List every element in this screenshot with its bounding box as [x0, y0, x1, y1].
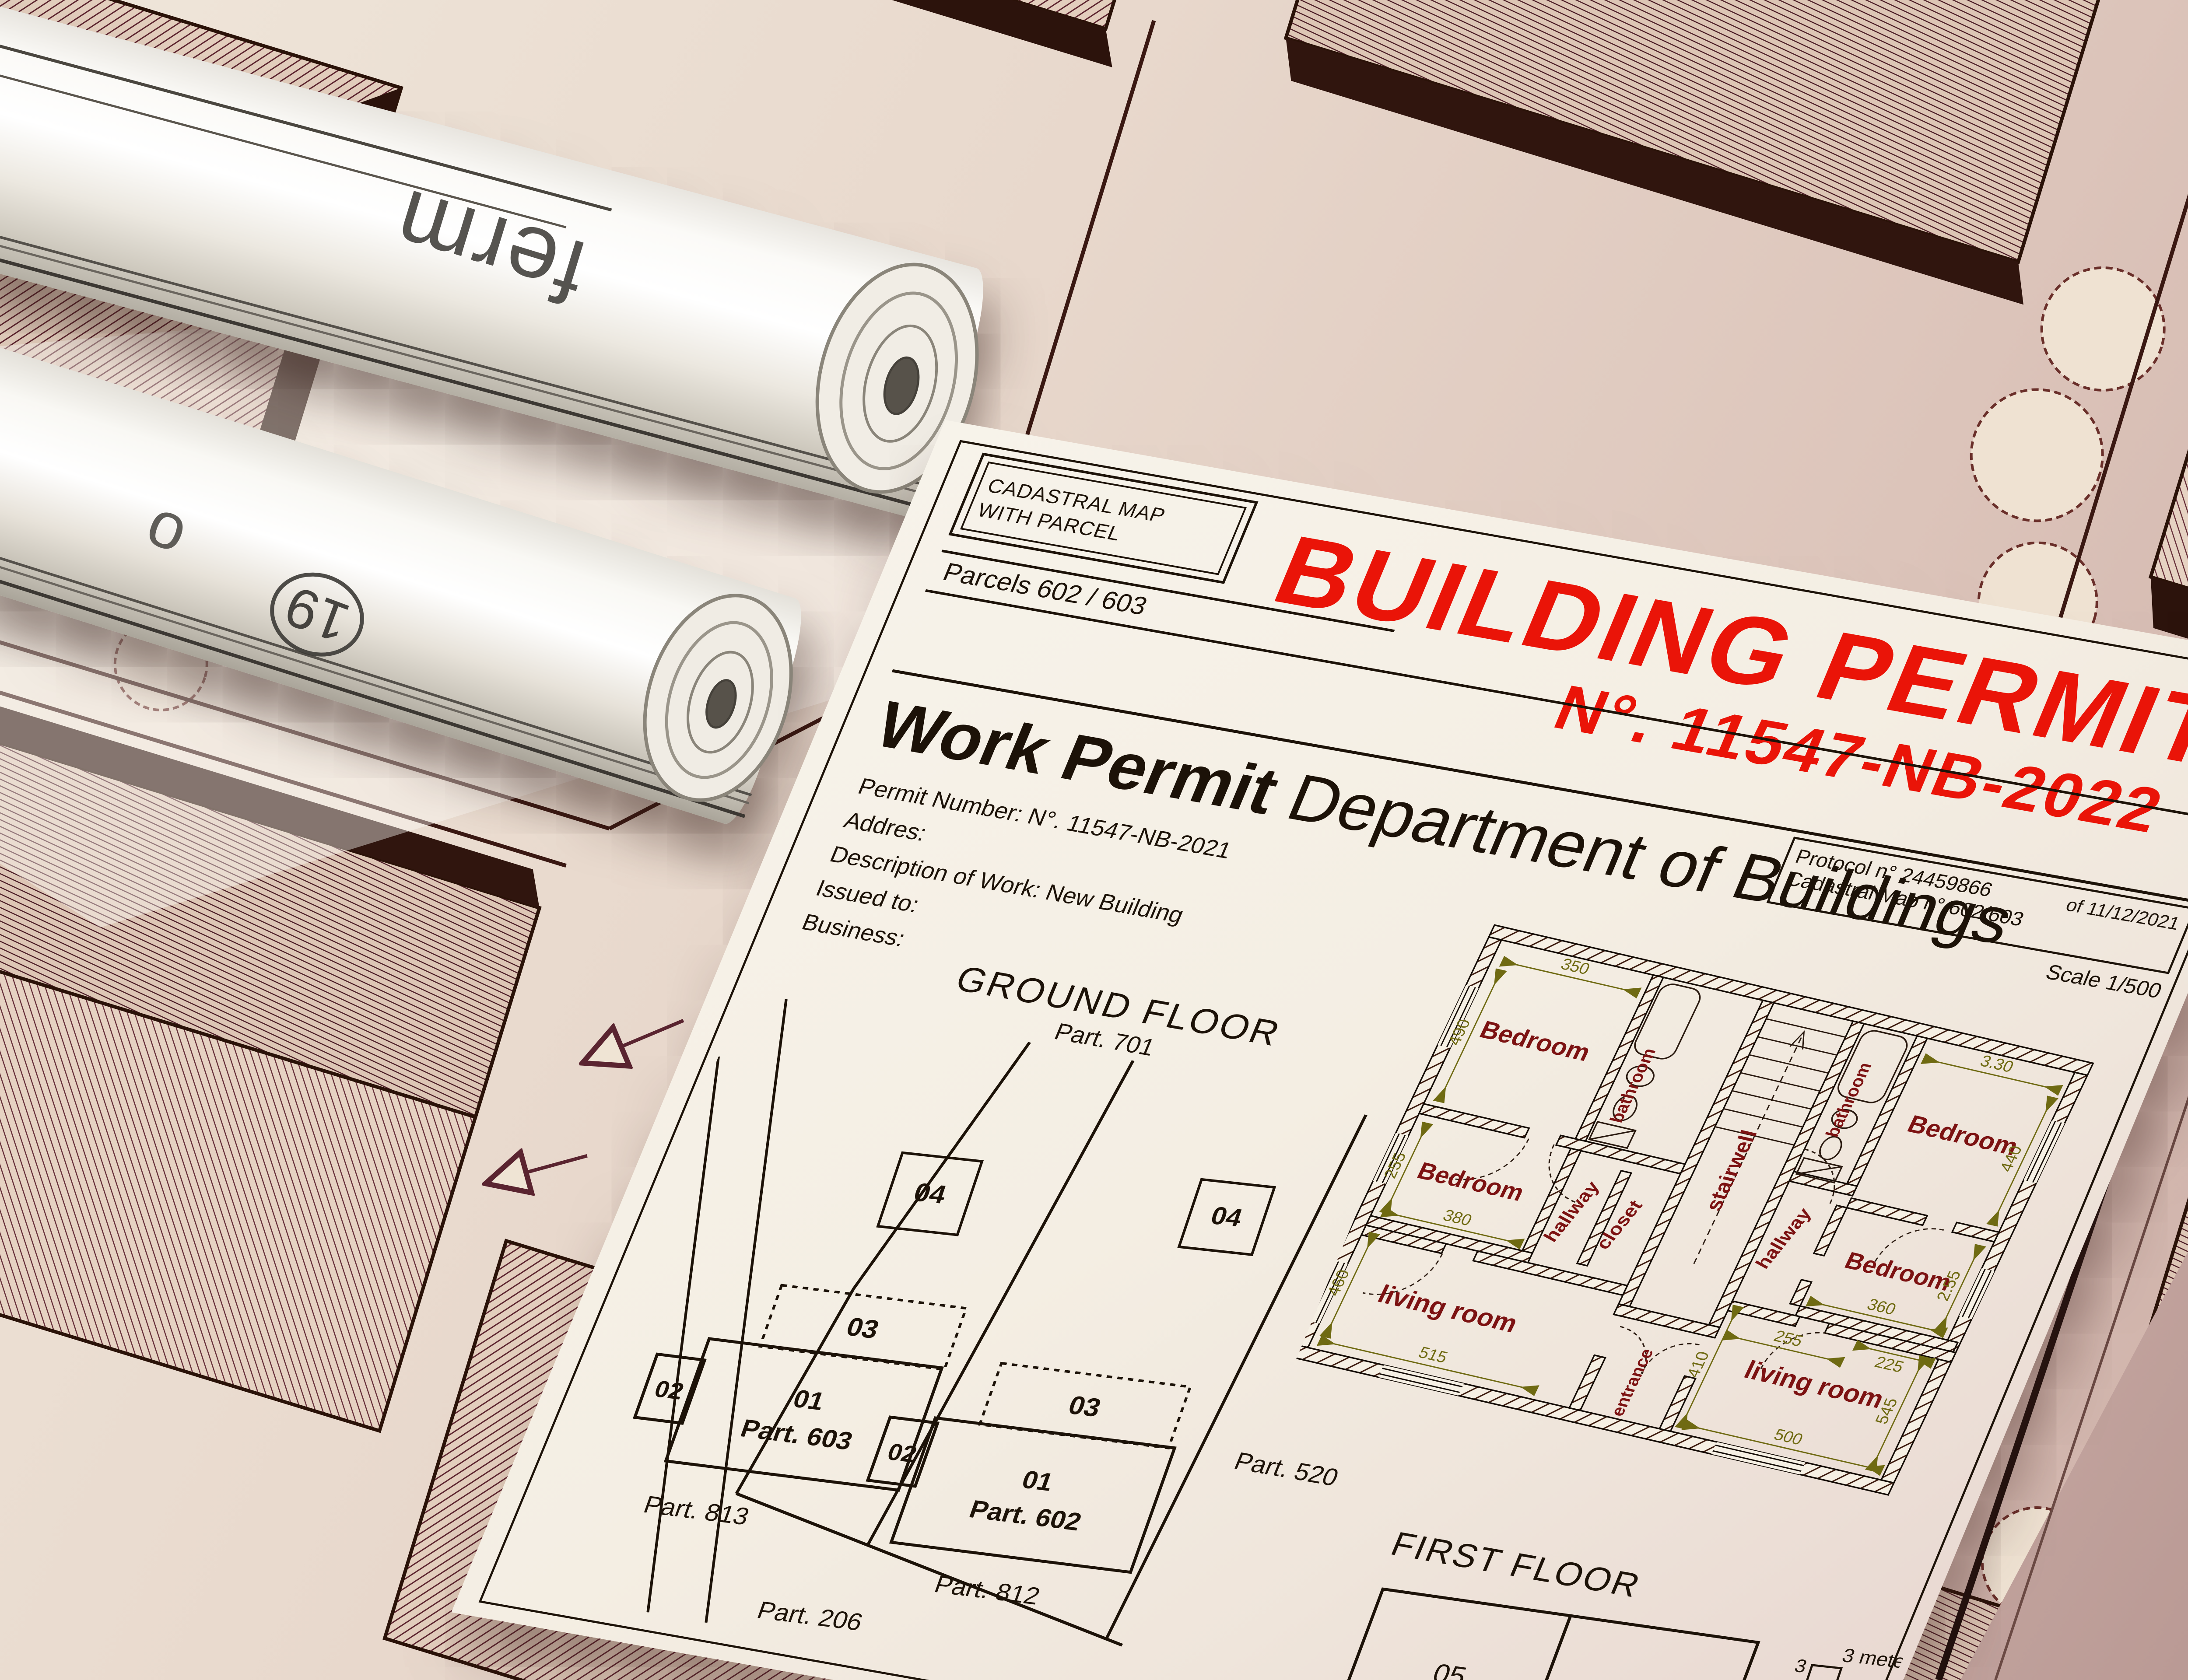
unit-02-left-label: 02 — [651, 1375, 687, 1405]
roll-mirrored-letter: o — [133, 493, 195, 577]
bedroom1-label: Bedroom — [1476, 1016, 1595, 1067]
unit-03-right-label: 03 — [1065, 1391, 1105, 1423]
unit-02-right-label: 02 — [884, 1438, 920, 1468]
entrance-label: entrance — [1607, 1347, 1658, 1418]
bedroom2-label: Bedroom — [1413, 1157, 1529, 1206]
unit-01-right-label: 01 — [1018, 1465, 1057, 1496]
stairwell-label: stairwell — [1701, 1128, 1762, 1213]
first-floor-unit-left: 05 — [1429, 1658, 1471, 1680]
parcel-602-label: Part. 602 — [966, 1495, 1085, 1536]
scale-tick-3: 3 — [1792, 1655, 1809, 1676]
roll-mirrored-text: ferm — [381, 168, 597, 326]
building-block-top-center — [1274, 0, 2169, 304]
parcel-206-label: Part. 206 — [754, 1597, 866, 1636]
unit-03-left-label: 03 — [842, 1312, 883, 1344]
dim-515: 515 — [1416, 1344, 1450, 1366]
parcel-603-label: Part. 603 — [737, 1414, 856, 1455]
building-block-top-left — [468, 0, 1244, 67]
living-room1-label: living room — [1374, 1280, 1522, 1338]
unit-04-right-label: 04 — [1207, 1201, 1246, 1232]
dim-225: 225 — [1872, 1353, 1906, 1376]
dim-500: 500 — [1771, 1426, 1806, 1449]
parcel-813-label: Part. 813 — [640, 1491, 753, 1530]
unit-04-left-label: 04 — [910, 1178, 950, 1209]
living-room2-label: living room — [1740, 1355, 1889, 1414]
photo-scene: ferm o 19 CADASTRAL MAP WITH PARCEL — [0, 0, 2188, 1680]
parcel-812-label: Part. 812 — [931, 1571, 1043, 1610]
dim-410: 410 — [1683, 1350, 1713, 1379]
roll-circled-number-text: 19 — [277, 574, 358, 656]
